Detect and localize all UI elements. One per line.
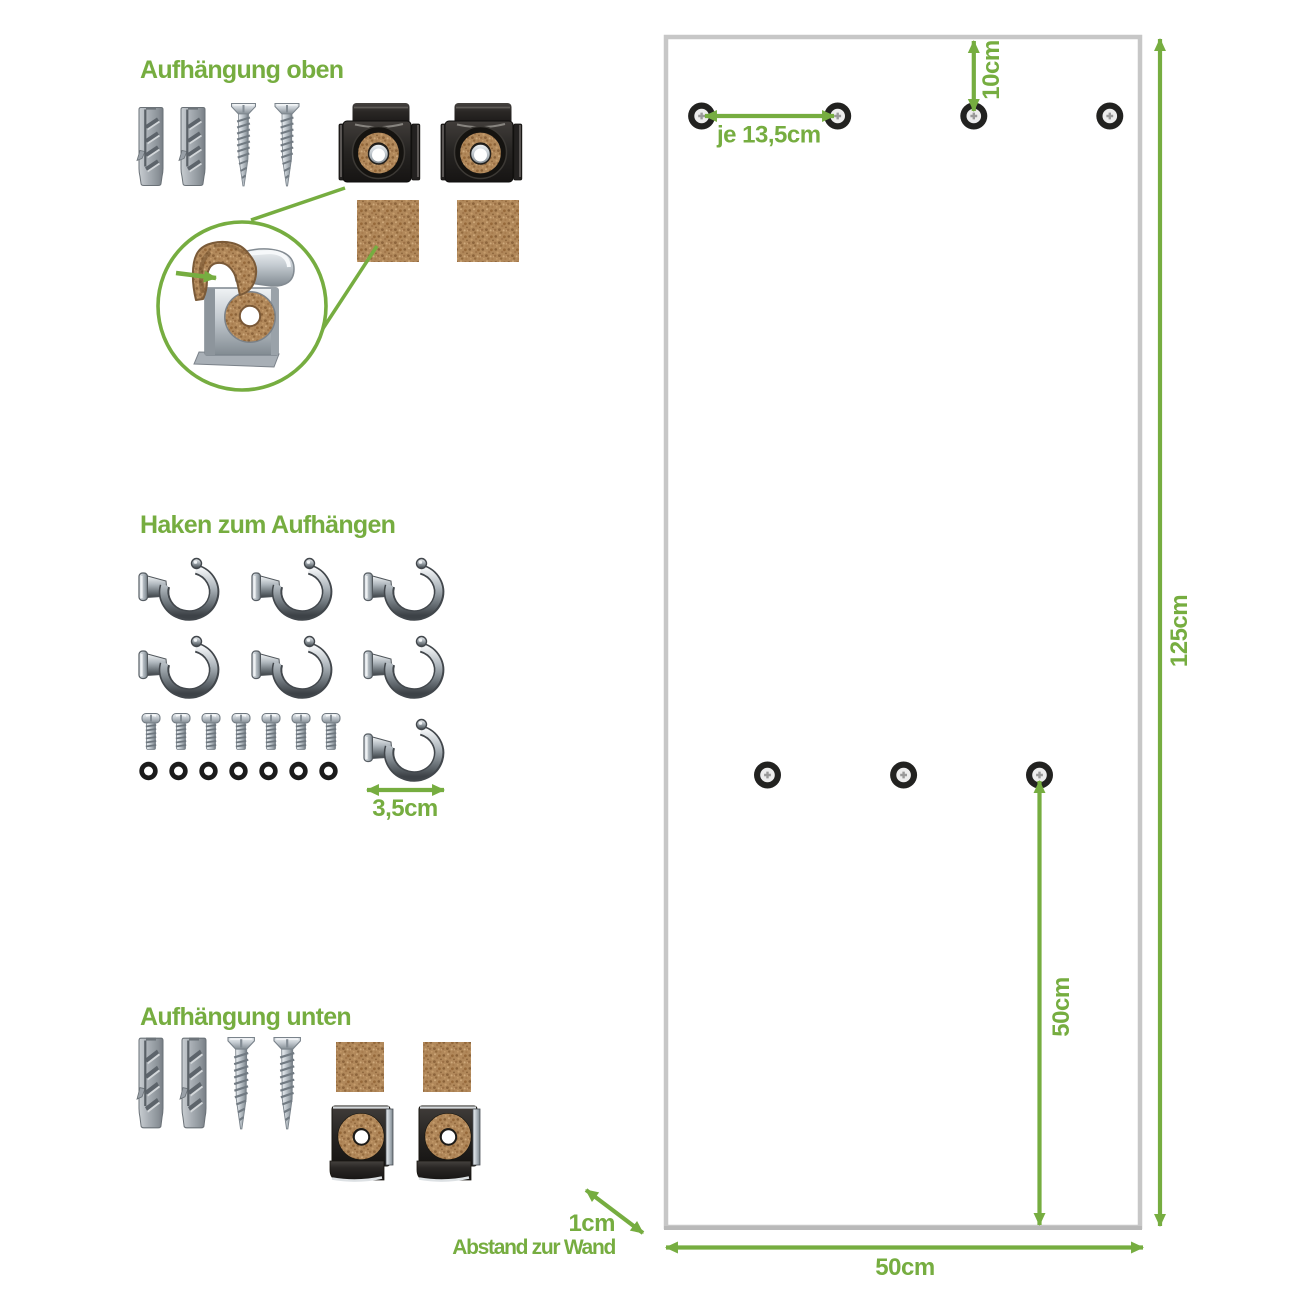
svg-text:50cm: 50cm [875, 1254, 934, 1281]
svg-text:125cm: 125cm [1166, 595, 1193, 667]
svg-text:Haken zum Aufhängen: Haken zum Aufhängen [140, 511, 395, 539]
svg-text:1cm: 1cm [568, 1210, 615, 1237]
svg-text:Aufhängung unten: Aufhängung unten [140, 1003, 351, 1031]
svg-text:Aufhängung oben: Aufhängung oben [140, 56, 343, 84]
svg-text:10cm: 10cm [978, 40, 1005, 99]
svg-text:3,5cm: 3,5cm [372, 795, 438, 822]
svg-text:Abstand zur Wand: Abstand zur Wand [452, 1236, 615, 1259]
svg-text:je 13,5cm: je 13,5cm [716, 122, 821, 149]
svg-text:50cm: 50cm [1048, 977, 1075, 1036]
